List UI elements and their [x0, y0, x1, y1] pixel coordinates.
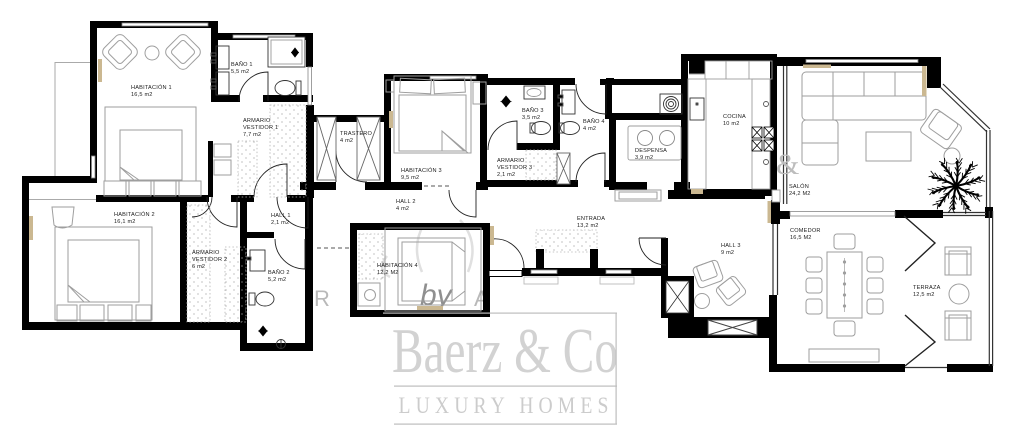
svg-text:ENTRADA: ENTRADA	[577, 216, 605, 222]
svg-text:VESTIDOR 3: VESTIDOR 3	[497, 165, 532, 171]
svg-text:9,5 m2: 9,5 m2	[401, 175, 419, 181]
svg-text:VESTIDOR 2: VESTIDOR 2	[192, 257, 227, 263]
svg-text:LUXURY HOMES: LUXURY HOMES	[399, 393, 614, 418]
svg-text:COMEDOR: COMEDOR	[790, 228, 821, 234]
svg-text:ARMARIO: ARMARIO	[243, 118, 271, 124]
svg-text:4 m2: 4 m2	[396, 206, 409, 212]
svg-text:VESTIDOR 1: VESTIDOR 1	[243, 125, 278, 131]
svg-text:BAÑO 2: BAÑO 2	[268, 269, 290, 276]
svg-text:BAÑO 4: BAÑO 4	[583, 118, 605, 125]
svg-text:2,1 m2: 2,1 m2	[497, 172, 515, 178]
svg-text:16,1 m2: 16,1 m2	[114, 219, 136, 225]
svg-text:12,5 m2: 12,5 m2	[913, 292, 935, 298]
svg-text:16,5 M2: 16,5 M2	[790, 235, 812, 241]
svg-text:7,7 m2: 7,7 m2	[243, 132, 261, 138]
svg-text:5,5 m2: 5,5 m2	[231, 69, 249, 75]
svg-text:BAÑO 1: BAÑO 1	[231, 61, 253, 68]
svg-text:ARMARIO: ARMARIO	[497, 158, 525, 164]
svg-text:TRASTERO: TRASTERO	[340, 131, 373, 137]
svg-text:HALL 3: HALL 3	[721, 243, 741, 249]
svg-text:HALL 1: HALL 1	[271, 213, 291, 219]
svg-text:13,2 m2: 13,2 m2	[577, 223, 599, 229]
svg-text:HABITACIÓN 2: HABITACIÓN 2	[114, 211, 155, 218]
svg-text:Baerz & Co: Baerz & Co	[392, 315, 618, 386]
svg-text:DESPENSA: DESPENSA	[635, 148, 667, 154]
svg-text:12,2 M2: 12,2 M2	[377, 270, 399, 276]
svg-text:HABITACIÓN 1: HABITACIÓN 1	[131, 84, 172, 91]
svg-text:&: &	[776, 148, 799, 181]
svg-text:HALL 2: HALL 2	[396, 199, 416, 205]
svg-text:HABITACIÓN 4: HABITACIÓN 4	[377, 262, 418, 269]
svg-text:TERRAZA: TERRAZA	[913, 285, 941, 291]
svg-text:10 m2: 10 m2	[723, 121, 740, 127]
svg-text:BAÑO 3: BAÑO 3	[522, 107, 544, 114]
svg-text:16,5 m2: 16,5 m2	[131, 92, 153, 98]
svg-text:3,5 m2: 3,5 m2	[522, 115, 540, 121]
svg-text:COCINA: COCINA	[723, 114, 746, 120]
svg-text:6 m2: 6 m2	[192, 264, 205, 270]
svg-text:HABITACIÓN 3: HABITACIÓN 3	[401, 167, 442, 174]
svg-text:2,1 m2: 2,1 m2	[271, 220, 289, 226]
svg-text:24,2 M2: 24,2 M2	[789, 191, 811, 197]
svg-text:4 m2: 4 m2	[340, 138, 353, 144]
svg-text:SALÓN: SALÓN	[789, 183, 809, 190]
svg-text:9 m2: 9 m2	[721, 250, 734, 256]
svg-text:ARMARIO: ARMARIO	[192, 250, 220, 256]
svg-text:4 m2: 4 m2	[583, 126, 596, 132]
svg-text:3,9 m2: 3,9 m2	[635, 155, 653, 161]
svg-text:R: R	[314, 286, 330, 311]
svg-text:5,2 m2: 5,2 m2	[268, 277, 286, 283]
